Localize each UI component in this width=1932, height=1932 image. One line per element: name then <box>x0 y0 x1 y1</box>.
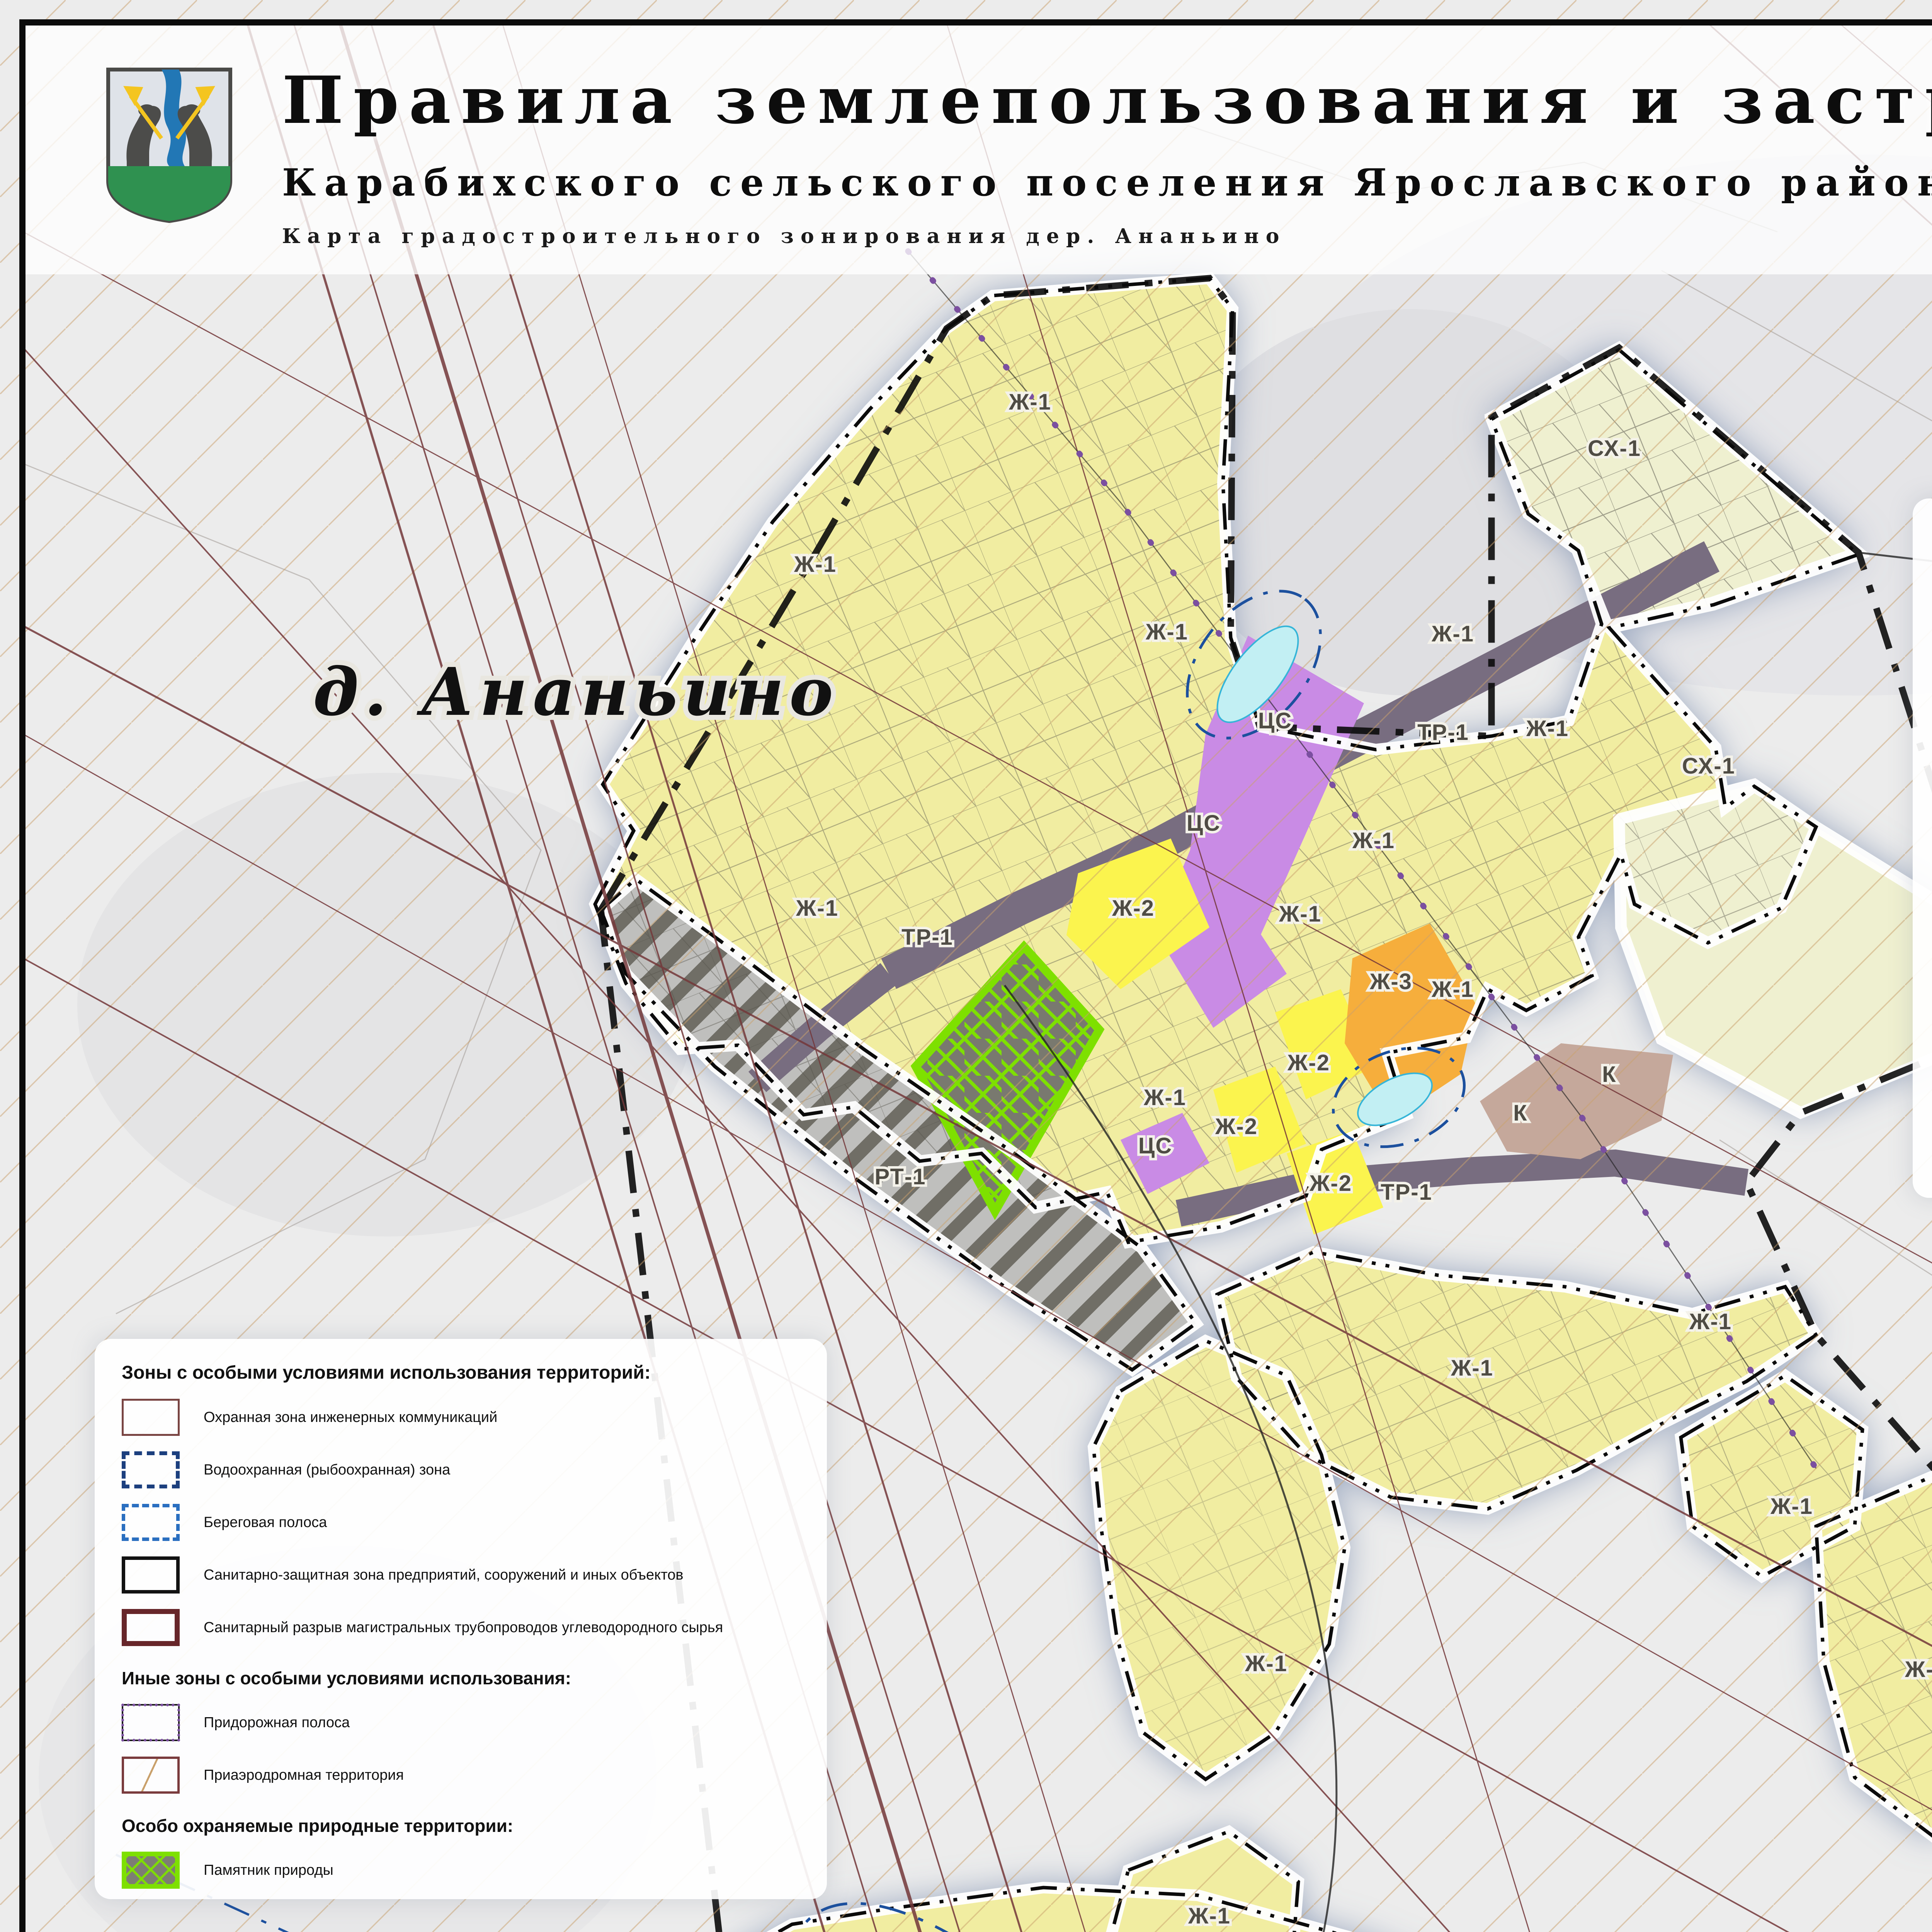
zone-code-label: Ж-1 <box>1009 389 1051 415</box>
special-zone-label: Береговая полоса <box>204 1514 327 1531</box>
special-zone-label: Памятник природы <box>204 1862 333 1879</box>
zone-code-label: Ж-1 <box>1431 977 1474 1002</box>
other-zones-items: Придорожная полосаПриаэродромная террито… <box>122 1704 800 1794</box>
zone-code-label: Ж-1 <box>1352 828 1395 853</box>
zoning-map-sheet: { "header": { "title": "Правила землепол… <box>0 0 1932 1932</box>
zone-code-label: Ж-1 <box>1526 716 1569 741</box>
special-zones-items: Охранная зона инженерных коммуникацийВод… <box>122 1399 800 1646</box>
special-zone-label: Приаэродромная территория <box>204 1767 404 1784</box>
special-zone-symbol <box>122 1609 180 1646</box>
zone-code-label: РТ-1 <box>875 1164 926 1189</box>
special-zone-symbol <box>122 1399 180 1436</box>
zone-code-label: Ж-1 <box>796 896 838 921</box>
special-zone-row: Охранная зона инженерных коммуникаций <box>122 1399 800 1436</box>
special-zone-row: Памятник природы <box>122 1852 800 1889</box>
zone-code-label: Ж-1 <box>1770 1494 1813 1519</box>
zone-code-label: Ж-1 <box>1905 1657 1932 1682</box>
map-name: Карта градостроительного зонирования дер… <box>282 224 1932 248</box>
zone-code-label: ЦС <box>1258 708 1292 733</box>
special-zone-label: Придорожная полоса <box>204 1714 350 1731</box>
zone-code-label: К <box>1513 1100 1527 1126</box>
zone-code-label: ТР-1 <box>1417 720 1469 745</box>
special-zone-row: Береговая полоса <box>122 1504 800 1541</box>
zone-code-label: ЦС <box>1187 811 1221 836</box>
zone-code-label: Ж-3 <box>1369 969 1412 994</box>
zone-code-label: Ж-2 <box>1309 1171 1352 1196</box>
zone-code-label: Ж-1 <box>1143 1085 1186 1110</box>
protected-items: Памятник природы <box>122 1852 800 1889</box>
special-zone-symbol <box>122 1852 180 1889</box>
zone-code-label: Ж-2 <box>1215 1114 1258 1139</box>
special-zones-title: Зоны с особыми условиями использования т… <box>122 1362 800 1383</box>
zone-code-label: СХ-1 <box>1588 436 1641 461</box>
special-zone-row: Водоохранная (рыбоохранная) зона <box>122 1451 800 1488</box>
special-zone-symbol <box>122 1504 180 1541</box>
special-zone-label: Санитарно-защитная зона предприятий, соо… <box>204 1567 684 1583</box>
coat-of-arms <box>104 65 235 225</box>
protected-title: Особо охраняемые природные территории: <box>122 1815 800 1836</box>
legend-panel: Условные обозначения: Границы единиц адм… <box>1913 498 1932 1198</box>
special-zone-symbol <box>122 1556 180 1594</box>
page-title: Правила землепользования и застройки <box>282 62 1932 138</box>
special-zone-label: Водоохранная (рыбоохранная) зона <box>204 1462 450 1478</box>
special-zone-label: Санитарный разрыв магистральных трубопро… <box>204 1619 723 1636</box>
zone-code-label: ТР-1 <box>1381 1180 1432 1205</box>
special-zones-panel: Зоны с особыми условиями использования т… <box>95 1339 827 1899</box>
zone-code-label: Ж-2 <box>1112 896 1155 921</box>
zone-code-label: Ж-1 <box>1188 1903 1231 1929</box>
place-name-label: д. Ананьино <box>313 653 838 731</box>
special-zone-row: Санитарный разрыв магистральных трубопро… <box>122 1609 800 1646</box>
special-zone-row: Придорожная полоса <box>122 1704 800 1741</box>
zone-code-label: Ж-1 <box>1451 1355 1493 1381</box>
special-zone-symbol <box>122 1704 180 1741</box>
zone-code-label: Ж-1 <box>1245 1651 1287 1676</box>
zone-code-label: Ж-1 <box>794 552 837 577</box>
zone-code-label: ЦС <box>1138 1133 1172 1158</box>
special-zone-symbol <box>122 1451 180 1488</box>
special-zone-row: Приаэродромная территория <box>122 1757 800 1794</box>
page-subtitle: Карабихского сельского поселения Ярослав… <box>282 161 1932 204</box>
special-zone-symbol <box>122 1757 180 1794</box>
zone-code-label: К <box>1602 1062 1616 1087</box>
zone-code-label: Ж-1 <box>1145 619 1188 645</box>
sheet-header: Правила землепользования и застройки Кар… <box>282 62 1932 248</box>
zone-code-label: Ж-1 <box>1689 1309 1732 1334</box>
other-zones-title: Иные зоны с особыми условиями использова… <box>122 1668 800 1689</box>
zone-code-label: Ж-2 <box>1287 1050 1330 1075</box>
zone-code-label: СХ-1 <box>1682 753 1735 779</box>
zone-code-label: Ж-1 <box>1431 621 1474 646</box>
zone-code-label: Ж-1 <box>1279 901 1321 927</box>
special-zone-label: Охранная зона инженерных коммуникаций <box>204 1409 497 1426</box>
special-zone-row: Санитарно-защитная зона предприятий, соо… <box>122 1556 800 1594</box>
zone-code-label: ТР-1 <box>901 925 953 950</box>
